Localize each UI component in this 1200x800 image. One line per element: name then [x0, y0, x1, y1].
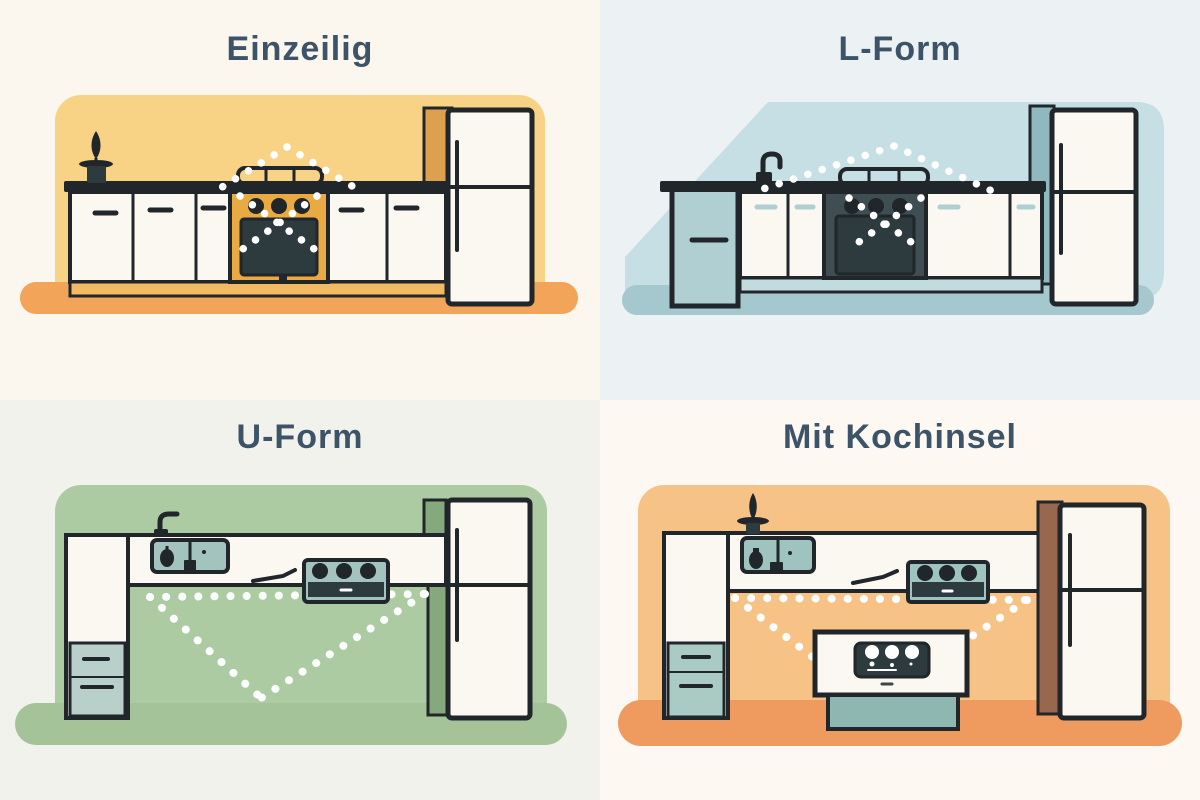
oven-icon: [836, 216, 914, 274]
kettle-icon: [160, 549, 174, 567]
dishwasher-icon: [672, 186, 738, 306]
fridge-icon: [448, 110, 532, 304]
cooktop-icon: [304, 560, 388, 602]
kitchen-illustration-u-form: [0, 400, 600, 800]
cooktop-icon: [908, 562, 988, 602]
sink-icon: [742, 538, 814, 573]
drawer-cabinet-icon: [668, 643, 724, 717]
panel-einzeilig: Einzeilig: [0, 0, 600, 400]
panel-u-form: U-Form: [0, 400, 600, 800]
fridge-icon: [448, 500, 530, 718]
panel-l-form: L-Form: [600, 0, 1200, 400]
fridge-icon: [1060, 505, 1144, 718]
drawer-cabinet-icon: [70, 643, 125, 716]
kitchen-illustration-mit-kochinsel: [600, 400, 1200, 800]
side-counter-strip: [424, 500, 448, 715]
kitchen-layouts-infographic: Einzeilig: [0, 0, 1200, 800]
panel-mit-kochinsel: Mit Kochinsel: [600, 400, 1200, 800]
kitchen-island-icon: [815, 632, 967, 729]
fridge-icon: [1052, 110, 1136, 304]
sink-icon: [152, 540, 228, 572]
kitchen-illustration-l-form: [600, 0, 1200, 400]
oven-icon: [241, 219, 317, 275]
kitchen-illustration-einzeilig: [0, 0, 600, 400]
